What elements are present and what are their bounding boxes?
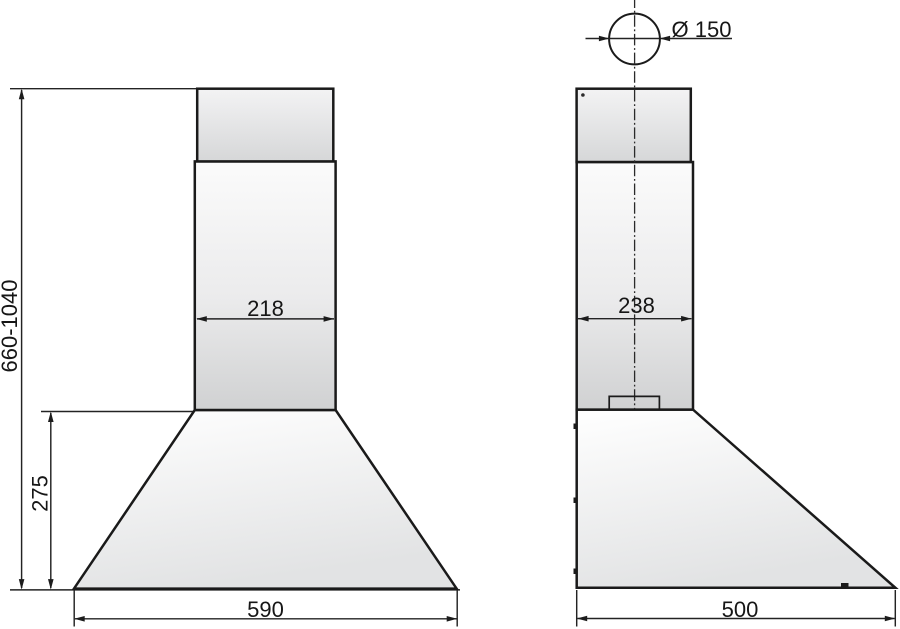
svg-text:275: 275 bbox=[27, 475, 52, 512]
svg-text:590: 590 bbox=[247, 597, 284, 622]
svg-text:Ø 150: Ø 150 bbox=[672, 17, 732, 42]
svg-text:660-1040: 660-1040 bbox=[0, 280, 22, 373]
svg-text:500: 500 bbox=[722, 597, 759, 622]
svg-text:238: 238 bbox=[618, 293, 655, 318]
svg-text:218: 218 bbox=[247, 296, 284, 321]
